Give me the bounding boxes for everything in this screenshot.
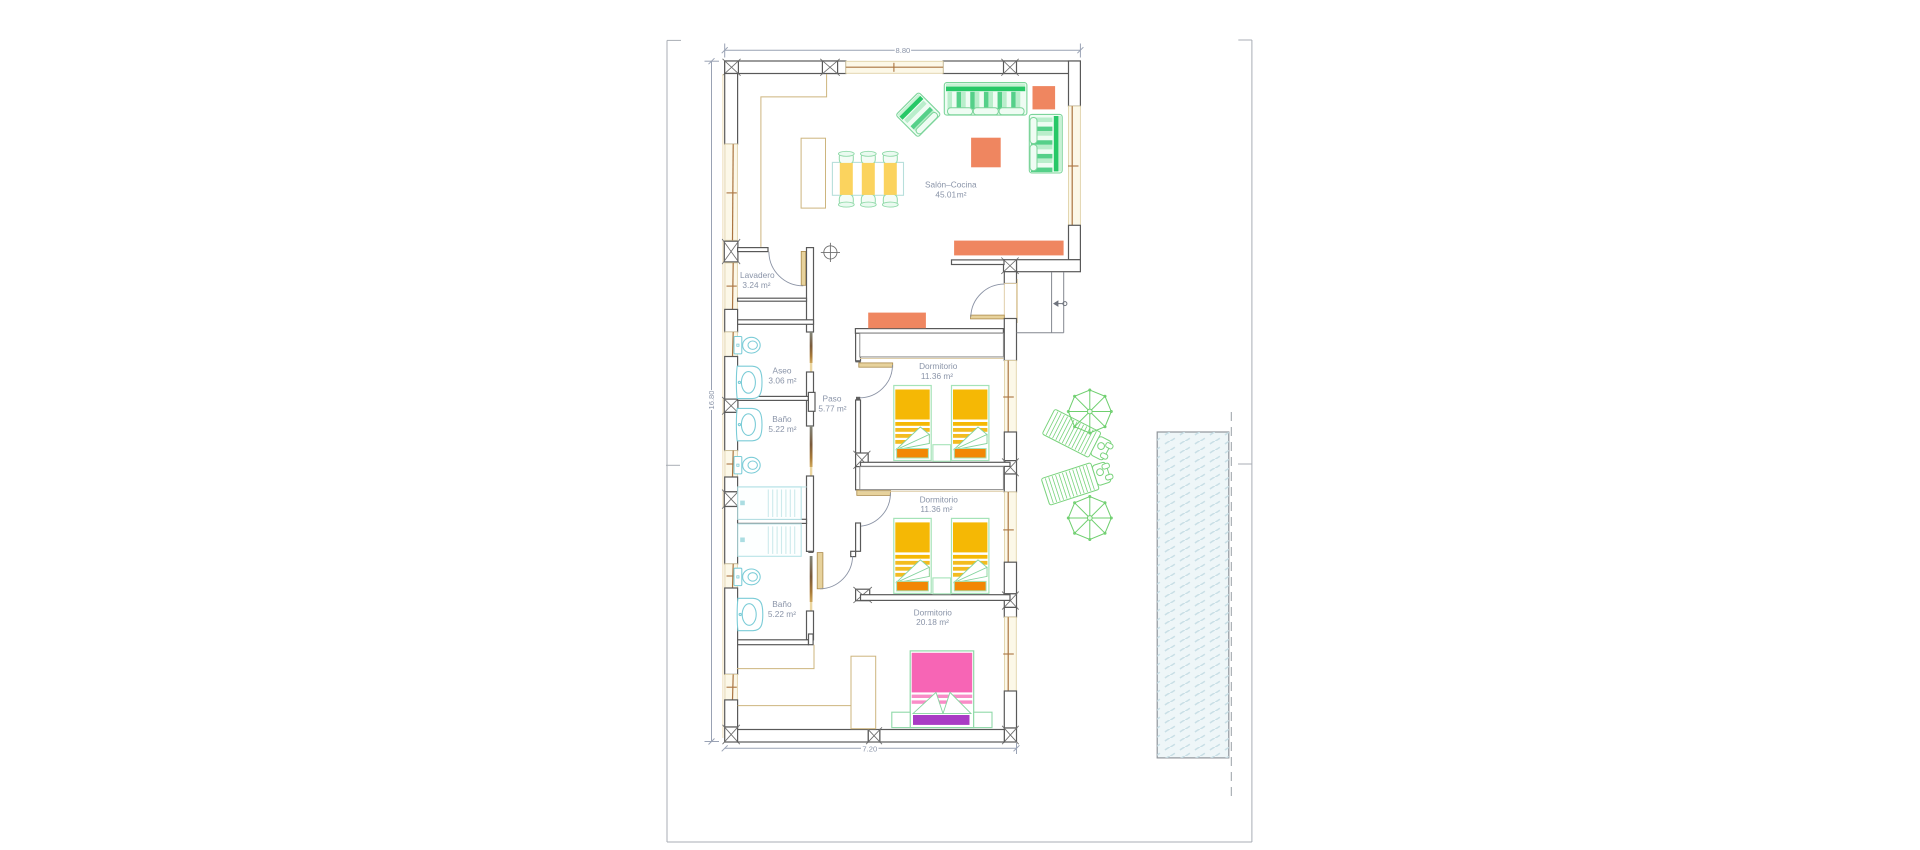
svg-text:5.22 m²: 5.22 m² [768,424,796,434]
svg-text:16.80: 16.80 [707,390,716,409]
svg-text:Dormitorio: Dormitorio [920,494,959,504]
svg-text:5.77 m²: 5.77 m² [818,403,846,413]
svg-text:7.20: 7.20 [862,744,877,753]
svg-text:20.18 m²: 20.18 m² [916,617,949,627]
svg-text:Salón–Cocina: Salón–Cocina [925,180,977,190]
svg-text:Aseo: Aseo [773,366,792,376]
svg-text:Paso: Paso [823,394,842,404]
svg-text:3.24 m²: 3.24 m² [742,280,770,290]
svg-text:Dormitorio: Dormitorio [919,361,958,371]
svg-text:11.36 m²: 11.36 m² [921,371,953,381]
svg-text:8.80: 8.80 [896,46,911,55]
svg-text:11.36 m²: 11.36 m² [920,504,952,514]
svg-text:Dormitorio: Dormitorio [914,608,953,618]
svg-text:5.22 m²: 5.22 m² [768,609,796,619]
svg-text:3.06 m²: 3.06 m² [768,375,796,385]
svg-text:Baño: Baño [772,414,792,424]
svg-text:45.01 m²: 45.01 m² [935,189,966,199]
svg-text:Lavadero: Lavadero [740,270,775,280]
svg-text:Baño: Baño [772,599,792,609]
